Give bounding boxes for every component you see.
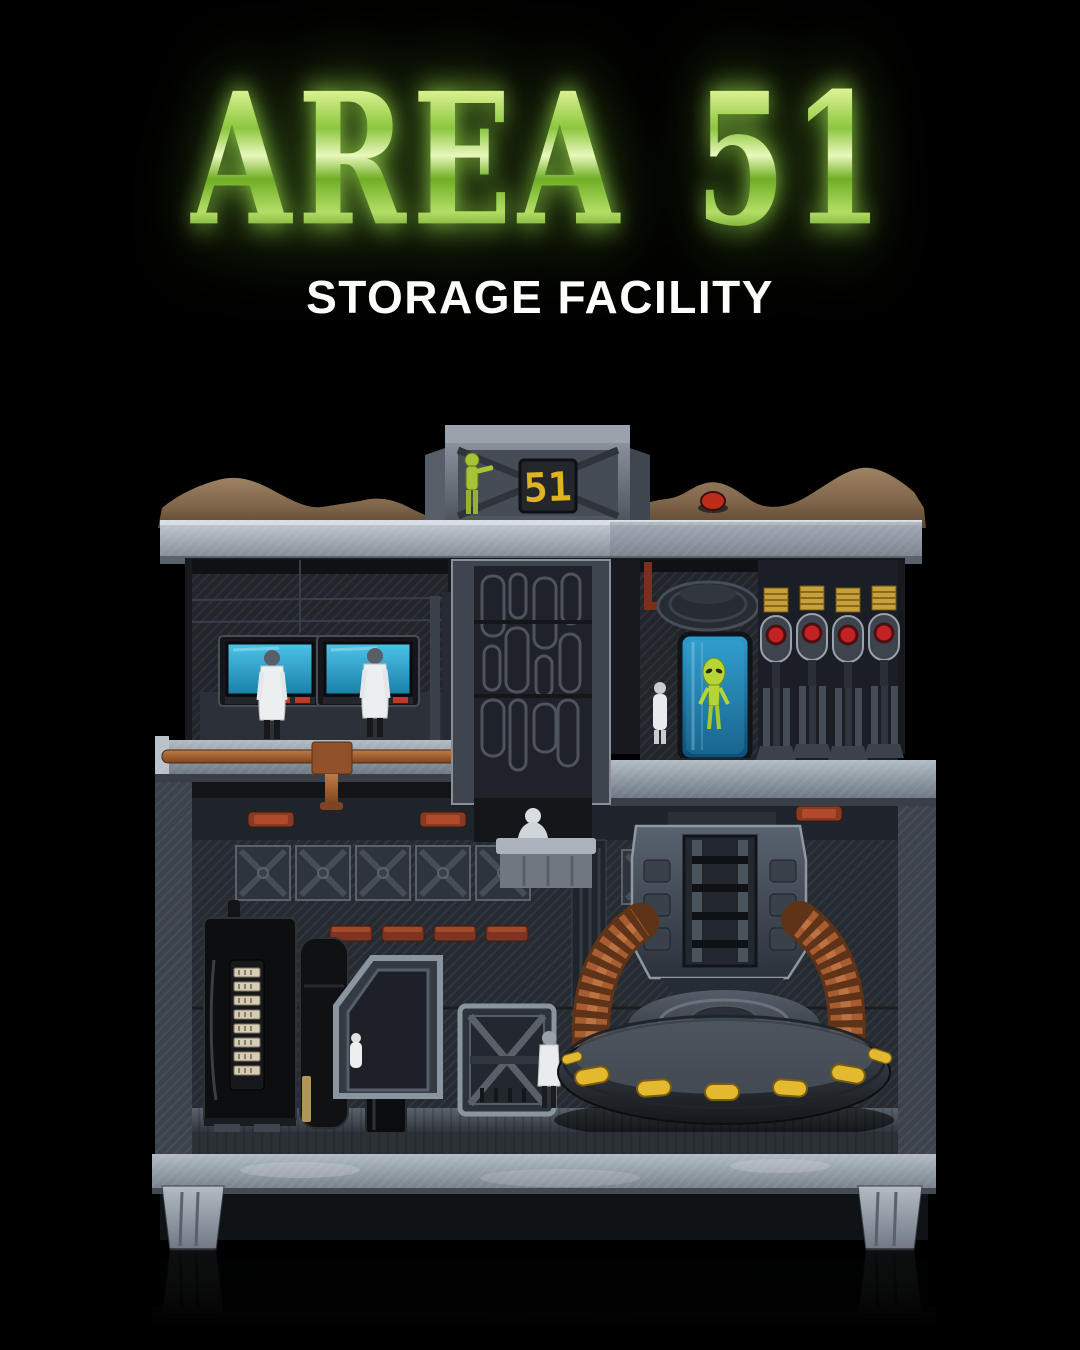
diorama-model [152, 425, 936, 1250]
poster: AREA 51 STORAGE FACILITY [0, 0, 1080, 1350]
reflection-fade-overlay [0, 1248, 1080, 1350]
poster-header: AREA 51 STORAGE FACILITY [0, 70, 1080, 324]
page-title: AREA 51 [191, 70, 890, 252]
page-subtitle: STORAGE FACILITY [0, 270, 1080, 324]
